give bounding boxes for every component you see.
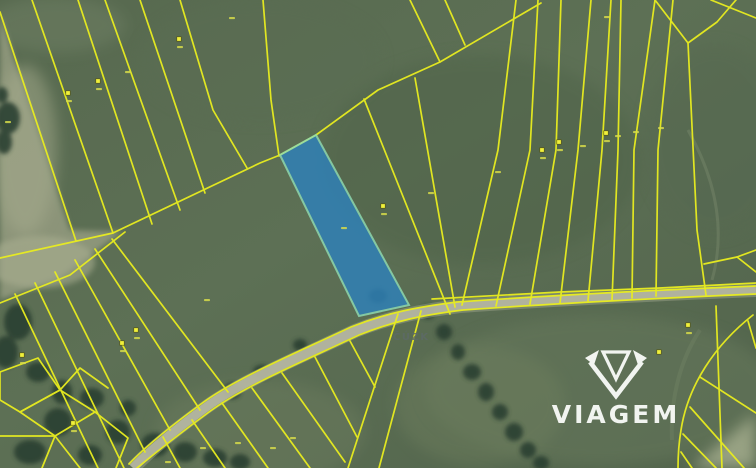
parcel-marker	[177, 37, 181, 41]
parcel-number-mark	[290, 437, 296, 439]
parcel-number-mark	[71, 430, 77, 432]
aerial-background	[0, 0, 756, 468]
parcel-number-mark	[381, 213, 387, 215]
parcel-number-mark	[20, 362, 26, 364]
parcel-number-mark	[604, 140, 610, 142]
parcel-number-mark	[134, 337, 140, 339]
parcel-number-mark	[96, 88, 102, 90]
map-canvas[interactable]: ČÚZK VIAGEM	[0, 0, 756, 468]
cadastral-map-view: ČÚZK VIAGEM	[0, 0, 756, 468]
parcel-number-mark	[557, 149, 563, 151]
parcel-number-mark	[615, 135, 621, 137]
parcel-marker	[20, 353, 24, 357]
parcel-marker	[71, 421, 75, 425]
parcel-marker	[686, 323, 690, 327]
parcel-number-mark	[633, 131, 639, 133]
parcel-number-mark	[495, 171, 501, 173]
parcel-marker	[604, 131, 608, 135]
parcel-number-mark	[5, 121, 11, 123]
parcel-number-mark	[125, 71, 131, 73]
parcel-number-mark	[204, 299, 210, 301]
parcel-number-mark	[658, 127, 664, 129]
parcel-number-mark	[604, 16, 610, 18]
parcel-number-mark	[540, 157, 546, 159]
parcel-number-mark	[270, 447, 276, 449]
parcel-number-mark	[120, 350, 126, 352]
parcel-number-mark	[200, 447, 206, 449]
map-attribution: ČÚZK	[393, 330, 429, 343]
parcel-marker	[96, 79, 100, 83]
parcel-marker	[557, 140, 561, 144]
parcel-number-mark	[428, 192, 434, 194]
parcel-marker	[66, 91, 70, 95]
parcel-number-mark	[177, 46, 183, 48]
parcel-marker	[381, 204, 385, 208]
parcel-marker	[120, 341, 124, 345]
viagem-wordmark: VIAGEM	[552, 400, 680, 429]
parcel-marker	[134, 328, 138, 332]
parcel-marker	[657, 350, 661, 354]
parcel-number-mark	[235, 442, 241, 444]
parcel-number-mark	[580, 145, 586, 147]
parcel-number-mark	[341, 227, 347, 229]
parcel-number-mark	[66, 100, 72, 102]
parcel-number-mark	[686, 332, 692, 334]
parcel-number-mark	[229, 17, 235, 19]
parcel-number-mark	[165, 461, 171, 463]
parcel-marker	[540, 148, 544, 152]
